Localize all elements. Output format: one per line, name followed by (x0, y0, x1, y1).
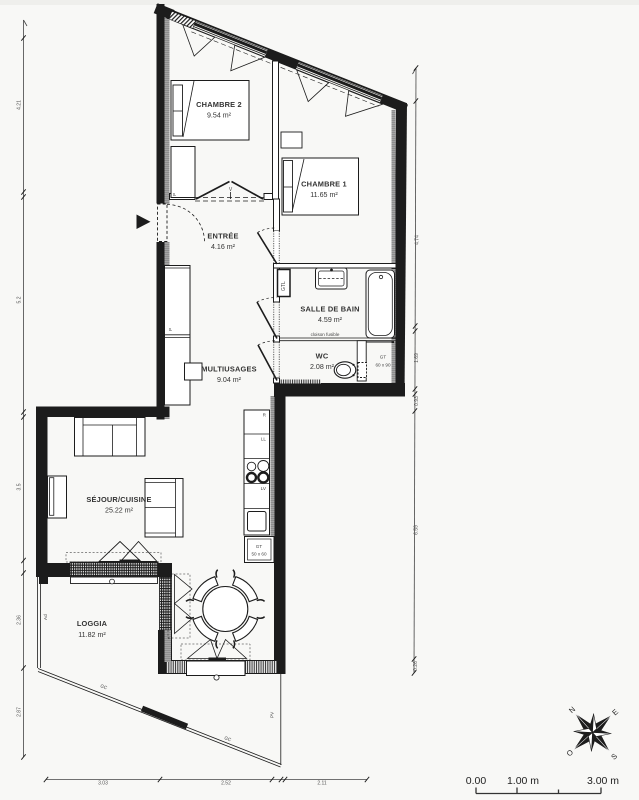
svg-text:0.00: 0.00 (466, 775, 487, 787)
svg-text:SALLE DE BAIN: SALLE DE BAIN (300, 305, 359, 314)
svg-text:4.21: 4.21 (17, 100, 23, 110)
svg-text:2.52: 2.52 (221, 781, 231, 787)
svg-text:P: P (172, 193, 177, 196)
svg-text:3.5: 3.5 (17, 483, 23, 490)
svg-text:4.59 m²: 4.59 m² (318, 316, 343, 324)
svg-text:50 x 60: 50 x 60 (251, 552, 267, 557)
svg-text:MULTIUSAGES: MULTIUSAGES (201, 365, 256, 374)
svg-text:2.08 m²: 2.08 m² (310, 363, 335, 371)
svg-text:LOGGIA: LOGGIA (77, 619, 108, 628)
svg-text:11.82 m²: 11.82 m² (78, 631, 106, 639)
svg-text:25.22 m²: 25.22 m² (105, 507, 134, 515)
svg-text:4.74: 4.74 (415, 235, 421, 245)
svg-text:0.93: 0.93 (414, 396, 420, 406)
svg-text:PV: PV (270, 711, 275, 718)
svg-text:WC: WC (316, 352, 329, 361)
svg-text:CHAMBRE 1: CHAMBRE 1 (301, 180, 347, 189)
svg-text:11.65 m²: 11.65 m² (310, 191, 338, 199)
svg-text:4.16 m²: 4.16 m² (211, 243, 236, 251)
svg-text:2.11: 2.11 (317, 781, 327, 787)
svg-text:2.36: 2.36 (17, 615, 23, 625)
svg-text:LL: LL (261, 437, 267, 442)
svg-text:P: P (168, 328, 173, 331)
svg-text:GT: GT (256, 544, 263, 549)
svg-text:cloison fusible: cloison fusible (311, 332, 340, 337)
svg-text:9.04 m²: 9.04 m² (217, 376, 242, 384)
svg-text:Ad: Ad (43, 614, 48, 620)
svg-text:0.26: 0.26 (413, 661, 419, 671)
svg-text:ENTRÉE: ENTRÉE (207, 232, 238, 241)
svg-text:3.03: 3.03 (98, 781, 108, 787)
svg-text:2.87: 2.87 (17, 707, 23, 717)
svg-text:1.00 m: 1.00 m (507, 775, 539, 787)
svg-text:CHAMBRE 2: CHAMBRE 2 (196, 100, 242, 109)
svg-text:6.59: 6.59 (414, 525, 420, 535)
svg-text:SÉJOUR/CUISINE: SÉJOUR/CUISINE (86, 495, 151, 504)
svg-text:9.54 m²: 9.54 m² (207, 112, 232, 120)
svg-text:3.00 m: 3.00 m (587, 775, 619, 787)
svg-text:5.2: 5.2 (17, 296, 23, 303)
svg-text:1.69: 1.69 (414, 353, 420, 363)
svg-text:GT: GT (380, 355, 387, 360)
svg-text:GTL: GTL (281, 281, 287, 291)
svg-text:60 x 90: 60 x 90 (375, 363, 391, 368)
